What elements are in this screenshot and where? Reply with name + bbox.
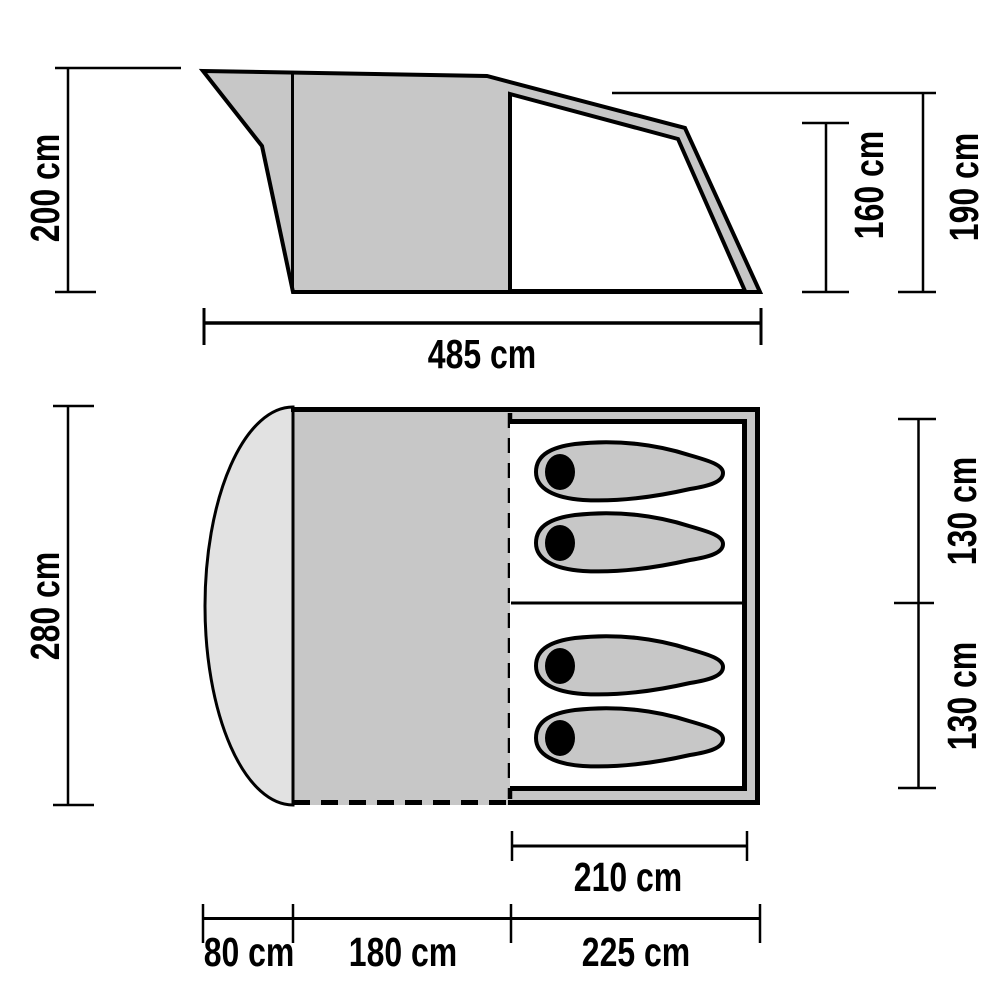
dim-inner-height-label: 190 cm — [941, 133, 987, 241]
dim-berth-top-label: 130 cm — [939, 457, 985, 565]
dim-depth-segments: 80 cm 180 cm 225 cm — [203, 904, 760, 975]
dim-total-width-label: 280 cm — [22, 552, 68, 660]
dim-berth-bottom-label: 130 cm — [939, 642, 985, 750]
floor-plan: 280 cm 210 cm 80 cm 180 cm 225 cm 130 — [22, 406, 985, 975]
dim-rear-height: 160 cm — [802, 123, 892, 292]
tent-spec-diagram: 200 cm 485 cm 160 cm 190 cm — [0, 0, 1000, 1000]
dim-berth-widths: 130 cm 130 cm — [894, 419, 985, 788]
dim-cabin-length: 210 cm — [512, 831, 747, 900]
dim-total-height-label: 200 cm — [22, 134, 68, 242]
dim-total-height: 200 cm — [22, 68, 181, 292]
dim-sleeping-depth-label: 225 cm — [582, 929, 690, 975]
dim-total-length: 485 cm — [204, 308, 761, 377]
dim-porch-depth-label: 80 cm — [204, 929, 295, 975]
dim-cabin-length-label: 210 cm — [574, 854, 682, 900]
side-view: 200 cm 485 cm 160 cm 190 cm — [22, 68, 987, 377]
dim-total-width: 280 cm — [22, 406, 94, 805]
dim-total-length-label: 485 cm — [428, 331, 536, 377]
dim-rear-height-label: 160 cm — [846, 131, 892, 239]
dim-living-depth-label: 180 cm — [349, 929, 457, 975]
diagram-canvas: 200 cm 485 cm 160 cm 190 cm — [0, 0, 1000, 1000]
porch-apse — [205, 407, 293, 805]
